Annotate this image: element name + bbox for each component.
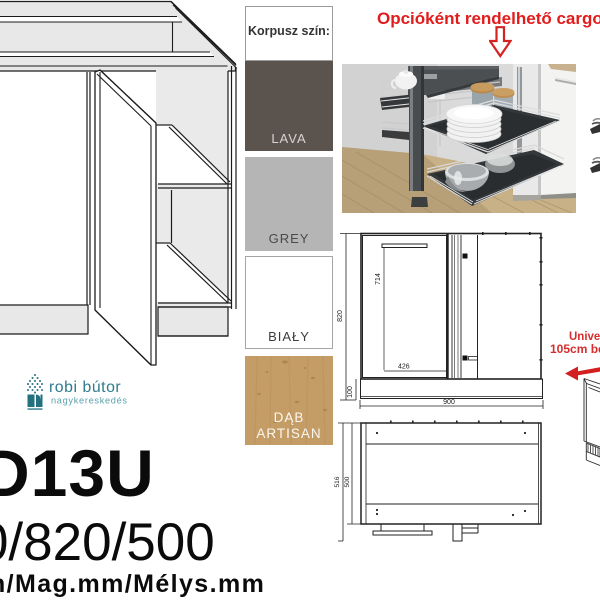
svg-text:714: 714	[375, 273, 382, 285]
svg-text:900: 900	[443, 399, 455, 406]
svg-text:robi bútor: robi bútor	[49, 379, 121, 396]
svg-text:500: 500	[344, 476, 351, 487]
svg-text:516: 516	[334, 476, 341, 487]
svg-text:nagykereskedés: nagykereskedés	[51, 396, 128, 406]
svg-text:820: 820	[337, 310, 344, 322]
svg-text:100: 100	[347, 386, 354, 398]
svg-text:DĄB: DĄB	[274, 410, 305, 425]
svg-text:ARTISAN: ARTISAN	[256, 426, 321, 441]
svg-text:426: 426	[398, 364, 410, 371]
